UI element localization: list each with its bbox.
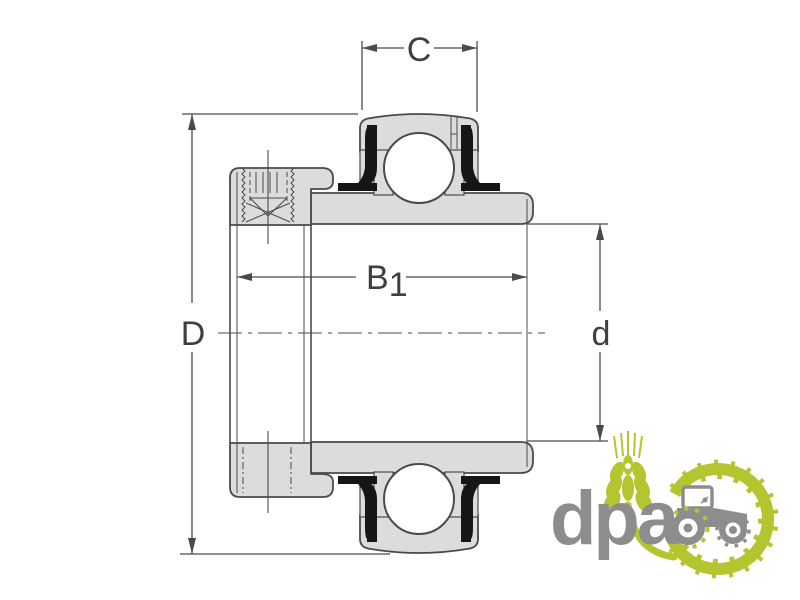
dimension-c: C (362, 31, 477, 112)
arrow-down-icon (596, 425, 604, 441)
ball (384, 133, 454, 203)
sleeve-face-lines (304, 199, 527, 467)
dim-label-b1: B1 (366, 259, 408, 304)
arrow-left-icon (237, 273, 252, 281)
seal-flinger-right (461, 183, 500, 191)
arrow-up-icon (596, 224, 604, 240)
seal-flinger-left (338, 183, 377, 191)
arrow-right-icon (462, 44, 477, 52)
dim-label-d-outer: D (181, 315, 206, 353)
outer-ring-ball-assembly-top (338, 114, 500, 203)
logo-text: dpa (550, 476, 680, 561)
tractor-icon (669, 487, 750, 548)
dim-label-c: C (407, 31, 432, 69)
outer-ring-ball-assembly-bottom (338, 464, 500, 553)
dpa-logo: dpa (550, 431, 776, 576)
arrow-right-icon (512, 273, 527, 281)
dimension-b1: B1 (237, 259, 527, 304)
arrow-left-icon (362, 44, 377, 52)
arrow-down-icon (188, 538, 196, 554)
arrow-up-icon (188, 114, 196, 130)
bearing-technical-drawing-page: C D d B1 (0, 0, 800, 600)
dim-label-d-bore: d (592, 315, 611, 353)
bearing-diagram: C D d B1 (0, 0, 800, 600)
